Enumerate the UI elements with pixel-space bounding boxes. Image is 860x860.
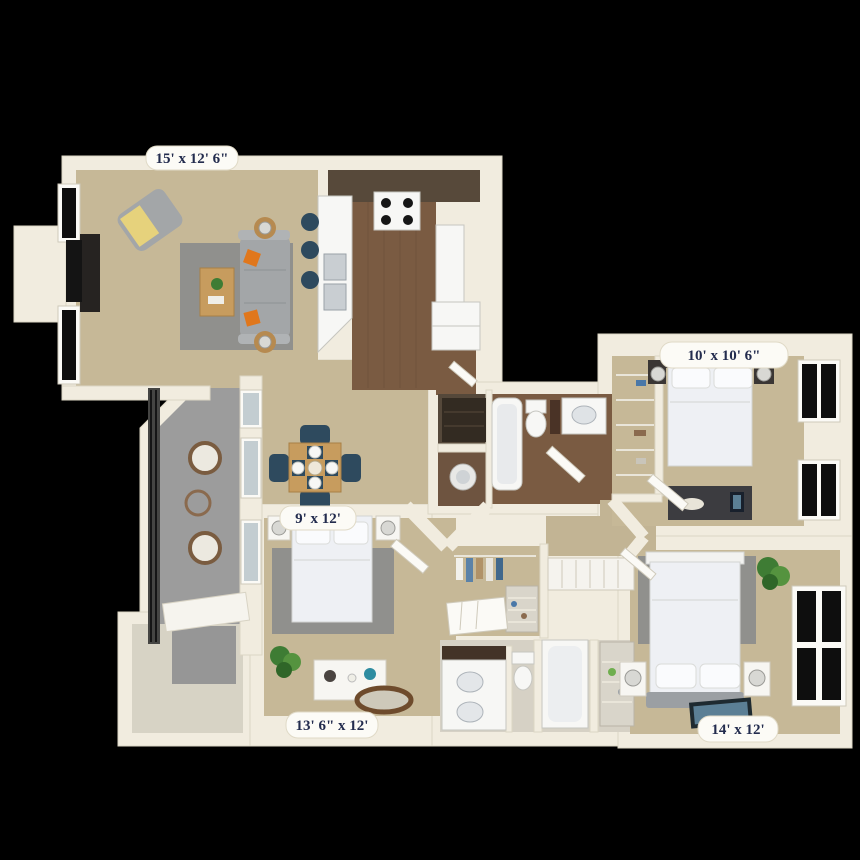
dining-chair [300, 425, 330, 445]
hanging-clothes [486, 558, 493, 581]
burner [381, 198, 391, 208]
label-bedroom-top-right: 10' x 10' 6" [660, 342, 788, 368]
toilet-bowl [514, 666, 532, 690]
nightstand-lamp [749, 670, 765, 686]
label-text: 15' x 12' 6" [156, 151, 229, 167]
dresser-candle [348, 674, 356, 682]
window-glass [797, 648, 816, 700]
closet-clothes [634, 430, 646, 436]
bathtub-basin [497, 404, 517, 484]
floorplan-canvas: 15' x 12' 6" 10' x 10' 6" 9' x 12' 13' 6… [0, 0, 860, 860]
pantry-cabinet [442, 398, 486, 442]
hanging-clothes [496, 558, 503, 580]
teal-vase [364, 668, 376, 680]
dining-chair [269, 454, 289, 482]
window-glass [802, 364, 817, 418]
pillow [700, 664, 740, 688]
window-glass [797, 591, 816, 642]
window-glass [822, 648, 841, 700]
closet-clothes [636, 380, 646, 386]
table-lamp [259, 336, 271, 348]
window-glass [822, 591, 841, 642]
hanging-clothes [456, 558, 463, 580]
living-south-wall [62, 386, 210, 400]
plate [309, 477, 321, 489]
label-living-room: 15' x 12' 6" [146, 146, 238, 170]
coffee-table [200, 268, 234, 316]
bath2-divider2 [534, 640, 542, 732]
hanging-clothes [476, 558, 483, 579]
label-text: 14' x 12' [711, 722, 764, 738]
floor-plant [276, 662, 292, 678]
table-plant [211, 278, 223, 290]
patio-chair [190, 443, 220, 473]
nightstand-lamp [651, 367, 665, 381]
bath2-divider1 [506, 646, 512, 732]
picture-art [733, 495, 741, 509]
dining-chair [341, 454, 361, 482]
pillow [672, 368, 710, 388]
label-text: 9' x 12' [295, 511, 341, 527]
burner [381, 215, 391, 225]
patio-door-glass [243, 393, 259, 425]
pillow [714, 368, 752, 388]
vanity-backsplash [442, 646, 506, 660]
stove [374, 192, 420, 230]
dresser-decor [324, 670, 336, 682]
washer-door [456, 470, 470, 484]
closet-east-wall [540, 544, 548, 638]
nightstand-lamp [381, 521, 395, 535]
shoes [521, 613, 527, 619]
floor-plant [762, 574, 778, 590]
pillow [656, 664, 696, 688]
plate [309, 446, 321, 458]
window-glass [821, 464, 836, 516]
closet-clothes [636, 458, 646, 464]
label-text: 13' 6" x 12' [296, 718, 369, 734]
burner [403, 198, 413, 208]
bath-cabinet [550, 400, 560, 434]
shoes [511, 601, 517, 607]
storage-back-wall [172, 626, 236, 684]
hanging-clothes [466, 558, 473, 582]
utility-divider-wall [438, 444, 488, 452]
sink-basin [324, 284, 346, 310]
bathroom-west-wall [486, 390, 492, 508]
window-glass [62, 188, 76, 238]
shower-basin [548, 646, 582, 722]
sink-basin [324, 254, 346, 280]
patio-chair [190, 533, 220, 563]
tray [208, 296, 224, 304]
bath2-divider3 [590, 640, 598, 732]
label-text: 10' x 10' 6" [688, 348, 761, 364]
bar-stool [301, 271, 319, 289]
nightstand-lamp [625, 670, 641, 686]
vanity-sink [457, 702, 483, 722]
patio-window-glass [244, 523, 258, 581]
window-glass [821, 364, 836, 418]
centerpiece [308, 461, 322, 475]
patio-window-glass [244, 441, 258, 495]
burner [403, 215, 413, 225]
bar-stool [301, 241, 319, 259]
plate [292, 462, 304, 474]
toilet-tank [512, 652, 534, 664]
sofa [238, 230, 290, 344]
plate [326, 462, 338, 474]
media-console [80, 234, 100, 312]
vanity-sink [457, 672, 483, 692]
vanity-sink [572, 406, 596, 424]
bar-stool [301, 213, 319, 231]
oval-rug [357, 688, 411, 712]
bifold-closet-doors [548, 558, 634, 590]
window-glass [62, 310, 76, 380]
window-glass [802, 464, 817, 516]
nightstand-lamp [757, 367, 771, 381]
table-lamp [259, 222, 271, 234]
towel-stack [608, 668, 616, 676]
label-dining-area: 9' x 12' [280, 506, 356, 530]
counter-east [436, 225, 464, 302]
toilet-bowl [526, 411, 546, 437]
floorplan-svg: 15' x 12' 6" 10' x 10' 6" 9' x 12' 13' 6… [0, 0, 860, 860]
label-bedroom-bottom-left: 13' 6" x 12' [286, 712, 378, 738]
tv-icon [66, 240, 82, 302]
patio-railing [148, 388, 160, 644]
label-bedroom-bottom-right: 14' x 12' [698, 716, 778, 742]
